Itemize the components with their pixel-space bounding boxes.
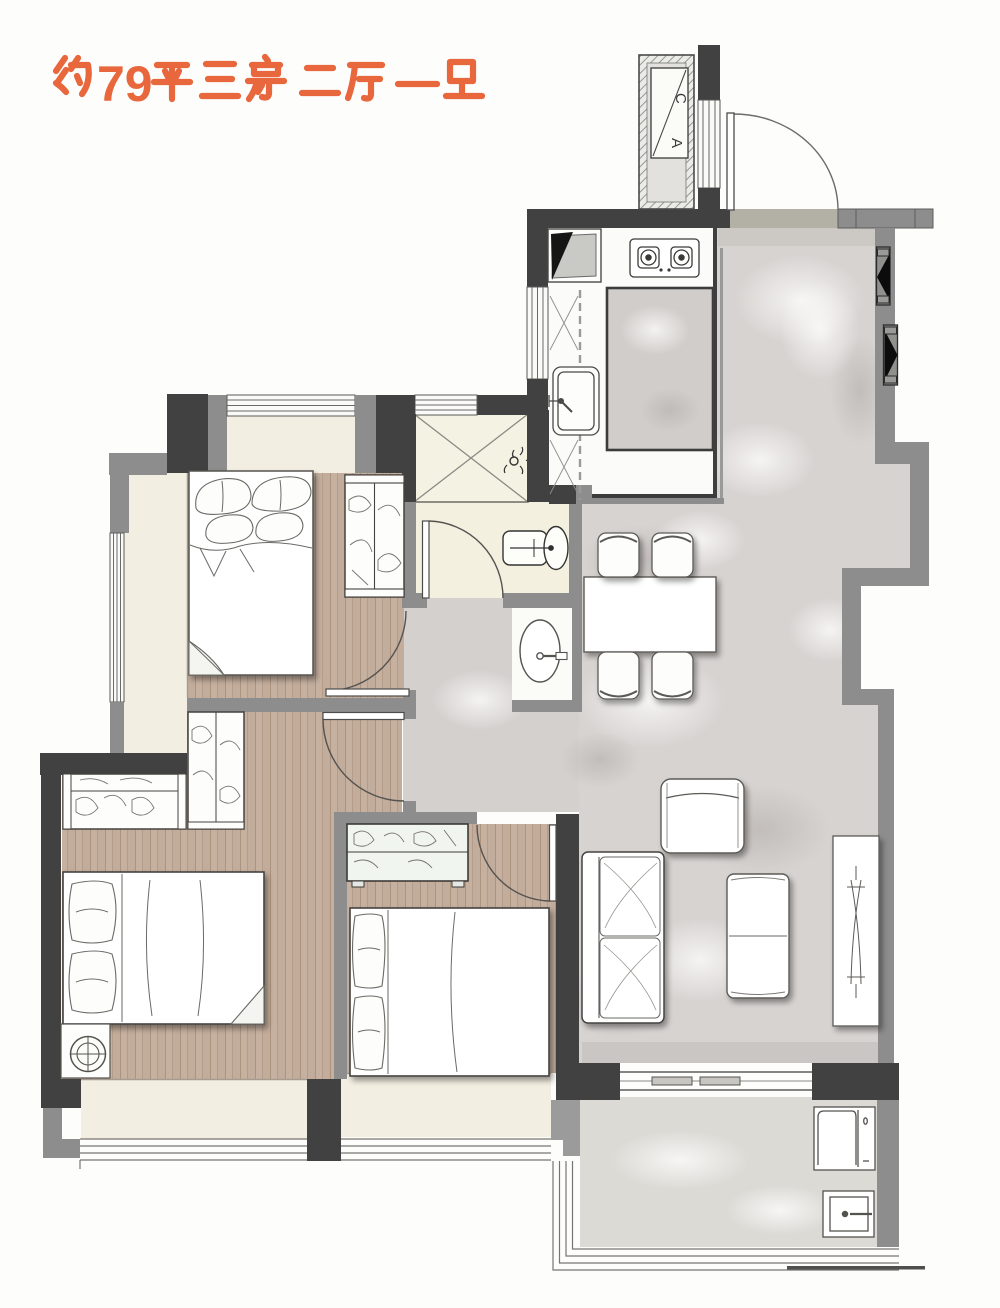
svg-text:C: C [672,93,689,104]
svg-text:A: A [668,138,685,148]
svg-text:79: 79 [97,56,153,112]
